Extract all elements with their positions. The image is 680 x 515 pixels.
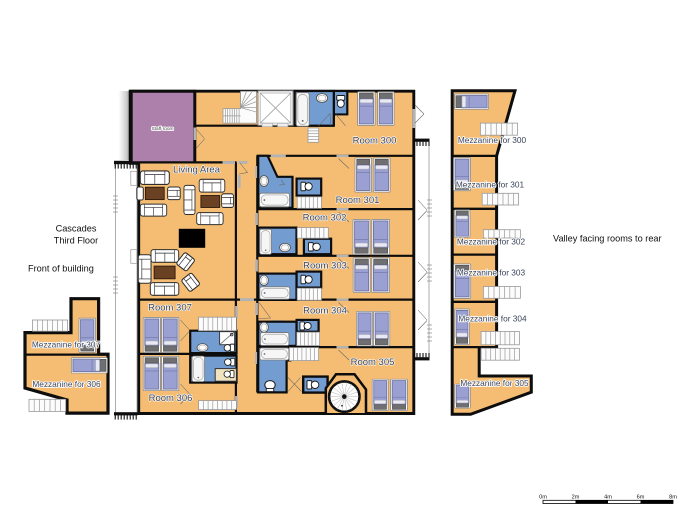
svg-text:Staff room: Staff room: [151, 126, 173, 132]
svg-text:Room 307: Room 307: [148, 302, 192, 313]
svg-text:Cascades: Cascades: [56, 224, 97, 234]
svg-text:Mezzanine for 304: Mezzanine for 304: [458, 313, 527, 323]
svg-text:Room 300: Room 300: [353, 135, 397, 146]
svg-text:Mezzanine for 305: Mezzanine for 305: [460, 378, 529, 388]
svg-text:Room 301: Room 301: [336, 195, 380, 206]
svg-text:Front of building: Front of building: [28, 264, 94, 274]
svg-text:Room 305: Room 305: [351, 357, 395, 368]
svg-text:6m: 6m: [637, 494, 645, 500]
svg-text:Mezzanine for 302: Mezzanine for 302: [457, 236, 526, 246]
svg-text:Room 303: Room 303: [303, 260, 347, 271]
svg-text:0m: 0m: [539, 494, 547, 500]
svg-text:Valley facing rooms to rear: Valley facing rooms to rear: [553, 234, 662, 244]
svg-text:2m: 2m: [572, 494, 580, 500]
svg-text:Mezzanine for 307: Mezzanine for 307: [32, 339, 101, 349]
svg-text:4m: 4m: [604, 494, 612, 500]
svg-text:8m: 8m: [669, 494, 677, 500]
svg-text:Mezzanine for 301: Mezzanine for 301: [456, 179, 525, 189]
svg-text:Room 304: Room 304: [303, 305, 347, 316]
svg-text:Mezzanine for 306: Mezzanine for 306: [32, 379, 101, 389]
svg-text:Mezzanine for 300: Mezzanine for 300: [458, 135, 527, 145]
svg-text:Living Area: Living Area: [173, 164, 221, 175]
svg-text:Room 306: Room 306: [149, 393, 193, 404]
svg-text:Room 302: Room 302: [303, 212, 347, 223]
svg-text:Mezzanine for 303: Mezzanine for 303: [457, 267, 526, 277]
svg-text:Third Floor: Third Floor: [54, 236, 98, 246]
